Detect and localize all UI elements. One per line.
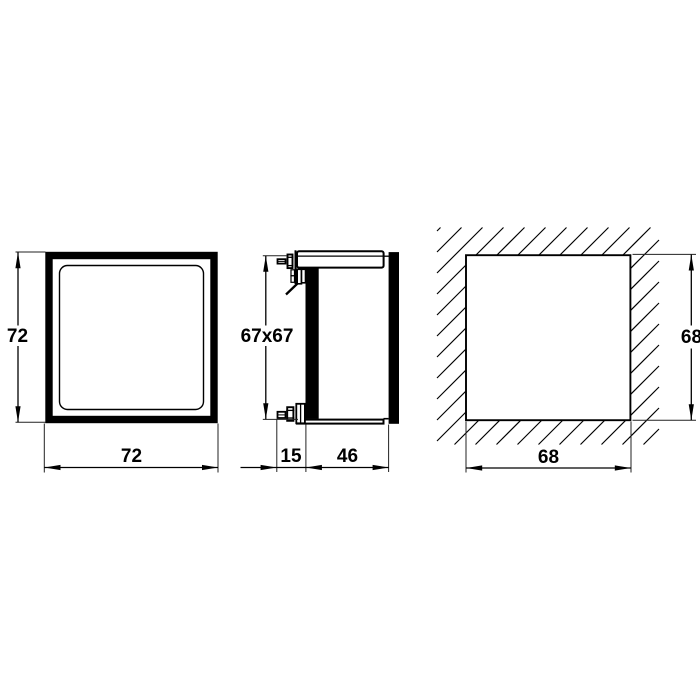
svg-text:68: 68 <box>538 447 559 468</box>
svg-text:15: 15 <box>280 446 302 467</box>
svg-text:72: 72 <box>7 326 28 347</box>
svg-text:46: 46 <box>337 446 358 467</box>
svg-text:67x67: 67x67 <box>241 326 294 347</box>
svg-text:68: 68 <box>681 327 700 348</box>
svg-text:72: 72 <box>121 446 142 467</box>
